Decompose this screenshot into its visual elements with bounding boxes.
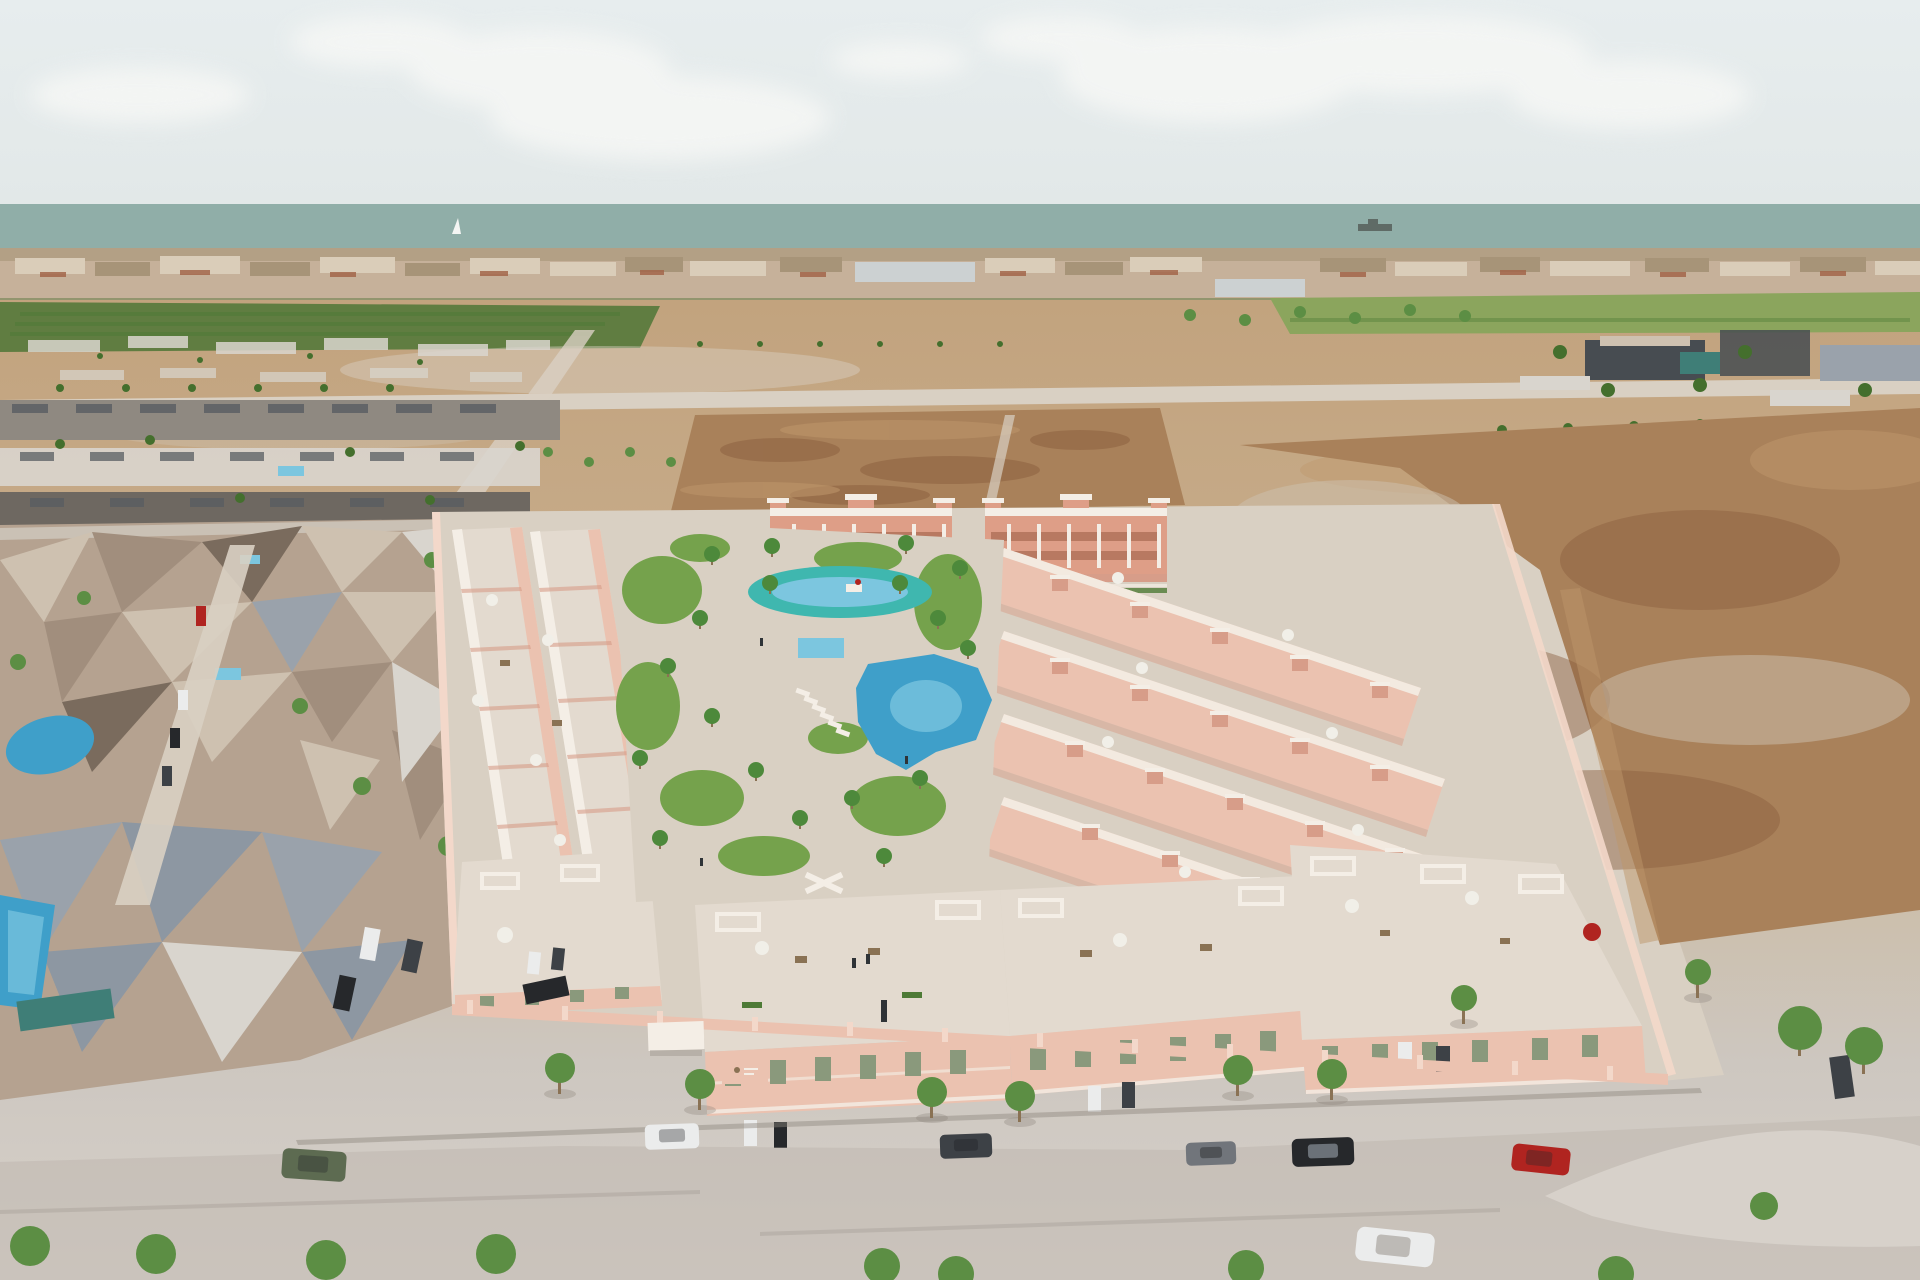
entrance-sign bbox=[722, 1060, 768, 1084]
parked-car-dark bbox=[1122, 1082, 1135, 1108]
parked-car-white bbox=[1088, 1086, 1101, 1112]
parked-suv-white bbox=[645, 1123, 700, 1150]
aerial-render bbox=[0, 0, 1920, 1280]
parked-suv-green bbox=[281, 1148, 347, 1182]
parked-car-black bbox=[170, 728, 180, 748]
parasol bbox=[1113, 933, 1127, 947]
parasol bbox=[497, 927, 513, 943]
entrance-kiosk bbox=[648, 1021, 705, 1051]
kids-lagoon-pool bbox=[748, 566, 932, 618]
pedestrian bbox=[881, 1000, 887, 1022]
dirt-field bbox=[670, 408, 1185, 515]
parked-car-dark bbox=[551, 947, 565, 970]
kiosk-shadow bbox=[650, 1050, 702, 1056]
parked-suv-dark bbox=[940, 1133, 993, 1159]
central-park bbox=[612, 520, 1004, 902]
parked-car-red bbox=[196, 606, 206, 626]
parked-suv-black-large bbox=[1292, 1137, 1355, 1167]
grey-house-band-2 bbox=[0, 448, 540, 486]
parked-car-white bbox=[178, 690, 188, 710]
parked-car-white bbox=[527, 951, 541, 974]
toddler-pool bbox=[798, 638, 844, 658]
sign-emblem bbox=[734, 1067, 740, 1073]
grey-house-band-1 bbox=[0, 400, 560, 440]
red-parasol bbox=[1583, 923, 1601, 941]
parasol bbox=[755, 941, 769, 955]
backyard-pool bbox=[278, 466, 304, 476]
parked-car-dark bbox=[162, 766, 172, 786]
parked-suv-grey bbox=[1186, 1141, 1237, 1166]
